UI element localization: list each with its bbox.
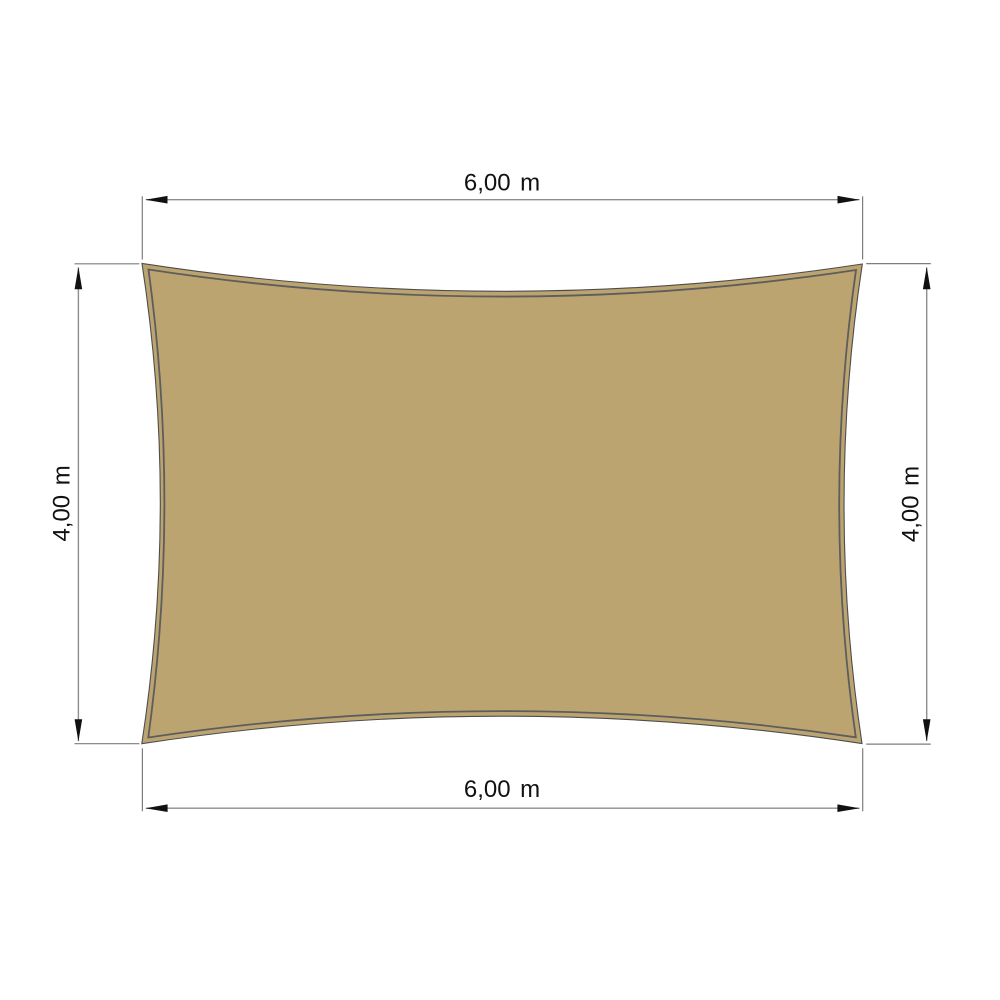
svg-text:6,00 m: 6,00 m [464, 169, 540, 196]
svg-text:4,00 m: 4,00 m [49, 465, 76, 541]
svg-text:4,00 m: 4,00 m [897, 466, 924, 542]
svg-text:6,00 m: 6,00 m [464, 776, 540, 803]
